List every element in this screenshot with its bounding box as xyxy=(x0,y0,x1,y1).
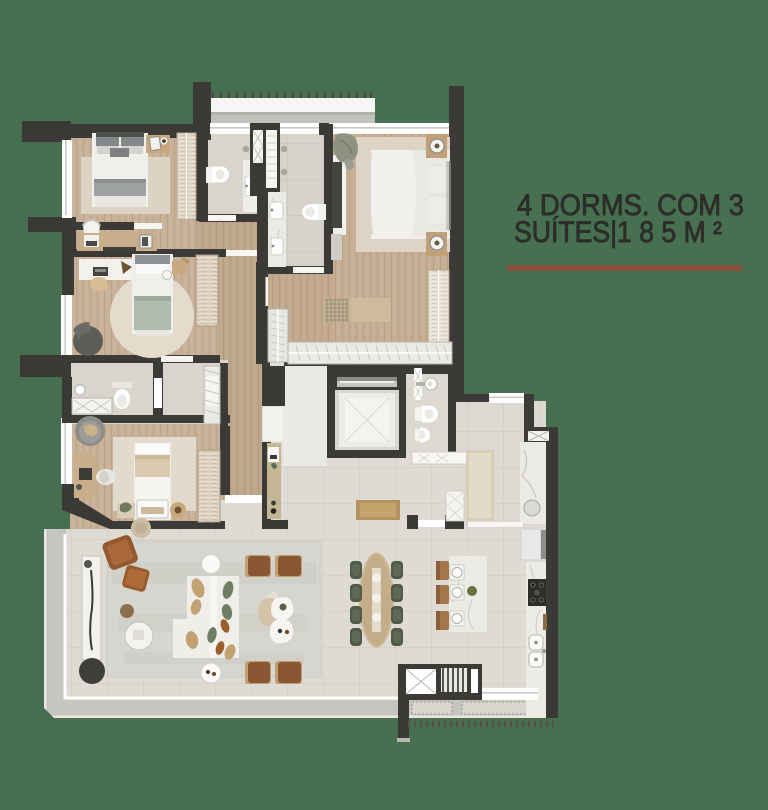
svg-text:SUÍTES|1 8 5 M ²: SUÍTES|1 8 5 M ² xyxy=(514,216,722,249)
